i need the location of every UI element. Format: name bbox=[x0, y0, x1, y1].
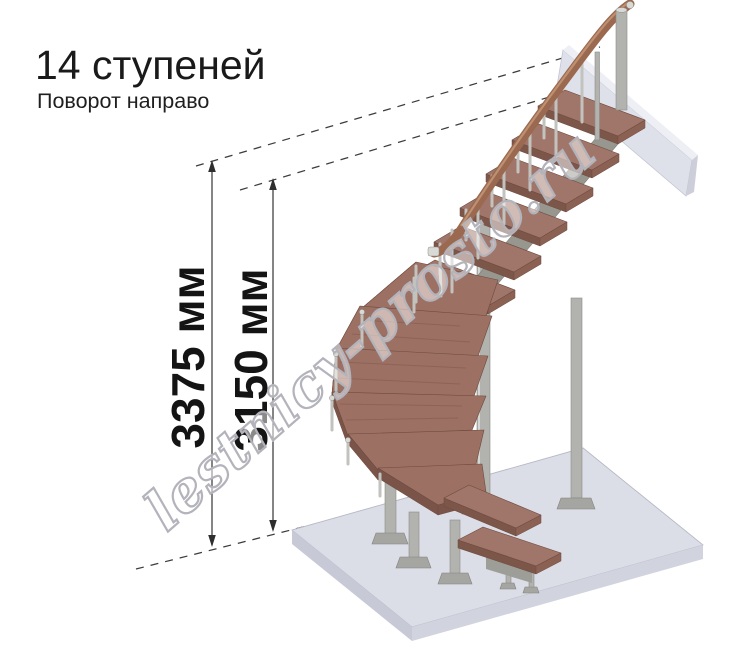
staircase-diagram-page: 3375 мм 3150 мм bbox=[0, 0, 743, 655]
landing-newel-post bbox=[616, 10, 627, 110]
winder-support-column-2 bbox=[409, 512, 419, 560]
page-subtitle: Поворот направо bbox=[37, 89, 209, 113]
arrow-down-outer bbox=[208, 535, 216, 547]
entry-step-foot-2 bbox=[523, 587, 539, 593]
landing-support-base bbox=[557, 498, 595, 509]
winder-support-base-1 bbox=[372, 533, 408, 544]
arrow-up-outer bbox=[208, 160, 216, 172]
entry-step-foot-1 bbox=[500, 583, 516, 589]
baluster-ball bbox=[345, 437, 350, 442]
winder-support-base-2 bbox=[396, 557, 431, 568]
landing-support-pole bbox=[571, 298, 582, 498]
landing-baluster bbox=[595, 52, 600, 140]
tread-top bbox=[332, 392, 486, 436]
arrow-down-inner bbox=[269, 520, 277, 532]
dimension-label-outer: 3375 мм bbox=[162, 265, 214, 448]
step-support-base bbox=[438, 573, 472, 584]
staircase-illustration: 3375 мм 3150 мм bbox=[0, 0, 743, 655]
handrail-tip-cap bbox=[626, 1, 633, 8]
page-title: 14 ступеней bbox=[35, 42, 266, 88]
newel-cap bbox=[616, 8, 627, 13]
